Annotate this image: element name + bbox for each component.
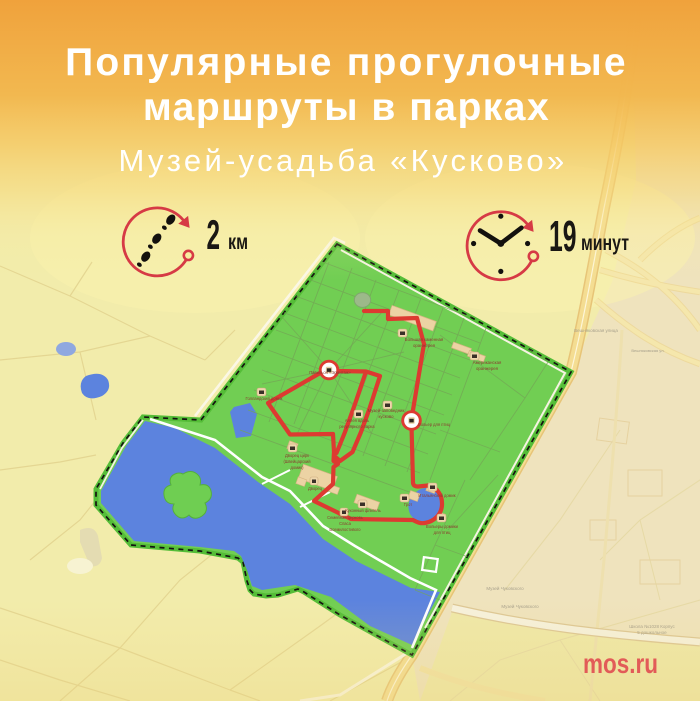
- svg-text:Дворец цирк: Дворец цирк: [285, 453, 309, 458]
- svg-text:Семейная церковь: Семейная церковь: [327, 515, 363, 520]
- svg-text:оранжерея: оранжерея: [413, 343, 436, 348]
- svg-text:кусково: кусково: [378, 414, 394, 419]
- svg-text:Музей-заповедник: Музей-заповедник: [368, 408, 405, 413]
- svg-text:км: км: [228, 231, 248, 254]
- svg-text:(Швейцарский: (Швейцарский: [283, 459, 310, 464]
- svg-text:Кухонный флигель: Кухонный флигель: [345, 508, 381, 513]
- svg-text:Популярные прогулочные: Популярные прогулочные: [65, 41, 628, 84]
- svg-text:Итальянский домик: Итальянский домик: [418, 493, 455, 498]
- svg-text:Спаса: Спаса: [339, 521, 351, 526]
- svg-text:2: 2: [207, 211, 221, 258]
- svg-text:маршруты в парках: маршруты в парках: [143, 86, 550, 129]
- svg-text:Грот: Грот: [404, 502, 412, 507]
- svg-text:для птиц: для птиц: [434, 530, 452, 535]
- svg-text:минут: минут: [581, 232, 629, 255]
- svg-text:Вешняковская улица: Вешняковская улица: [574, 328, 618, 333]
- svg-text:регулярного парка: регулярного парка: [339, 424, 375, 429]
- svg-text:Вешняковская ул.: Вешняковская ул.: [631, 348, 664, 353]
- svg-text:Американская: Американская: [473, 360, 502, 365]
- svg-text:Всемилостивого: Всемилостивого: [329, 527, 361, 532]
- svg-text:mos.ru: mos.ru: [583, 648, 658, 679]
- svg-text:Большая каменная: Большая каменная: [405, 337, 444, 342]
- svg-text:Музей Чуковского: Музей Чуковского: [486, 585, 524, 591]
- svg-text:Аллея вдоль: Аллея вдоль: [345, 418, 369, 423]
- svg-text:домик): домик): [291, 465, 305, 470]
- svg-text:19: 19: [549, 212, 577, 261]
- svg-text:Музей-усадьба «Кусково»: Музей-усадьба «Кусково»: [118, 143, 567, 178]
- svg-text:Вольер для птиц: Вольер для птиц: [418, 422, 451, 427]
- svg-text:Голландский домик: Голландский домик: [246, 396, 283, 401]
- svg-text:Дворец: Дворец: [308, 486, 323, 491]
- svg-text:Вольеры домики: Вольеры домики: [426, 524, 458, 529]
- svg-text:оранжерея: оранжерея: [476, 366, 499, 371]
- svg-text:Павильон «Эрмитаж»: Павильон «Эрмитаж»: [309, 370, 351, 375]
